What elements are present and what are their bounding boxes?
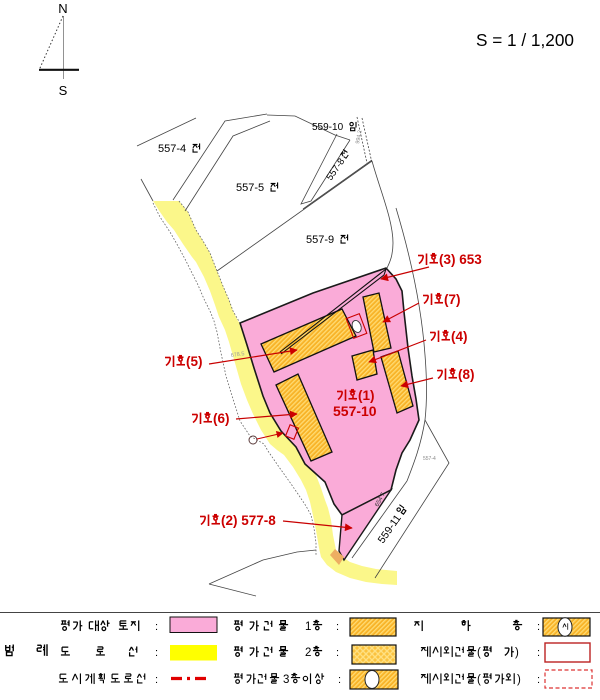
svg-text::: : [537,621,540,633]
svg-text:(8): (8) [458,367,475,382]
svg-text:557-5: 557-5 [236,182,264,194]
svg-text:557-4: 557-4 [158,143,186,155]
svg-text::: : [537,674,540,686]
svg-text:559-10: 559-10 [312,122,344,133]
svg-text:): ) [517,674,521,686]
svg-text:S: S [59,83,68,98]
svg-text:(1): (1) [358,388,375,403]
svg-text::: : [336,621,339,633]
svg-text:1: 1 [305,621,311,633]
svg-text::: : [155,647,158,659]
svg-text:(3) 653: (3) 653 [439,252,482,267]
svg-text:S = 1 / 1,200: S = 1 / 1,200 [476,30,574,50]
svg-text:): ) [515,647,519,659]
svg-text:(2) 577-8: (2) 577-8 [221,513,276,528]
svg-text:(5): (5) [186,354,203,369]
svg-text:(6): (6) [213,411,230,426]
svg-text:557-9: 557-9 [306,234,334,246]
svg-text::: : [336,647,339,659]
svg-text:(7): (7) [444,292,461,307]
svg-text::: : [338,674,341,686]
svg-text::: : [155,674,158,686]
svg-text:(4): (4) [451,329,468,344]
svg-text:(: ( [477,674,481,686]
svg-text::: : [537,647,540,659]
svg-text:3: 3 [283,674,289,686]
svg-text:N: N [58,1,67,16]
svg-text::: : [155,621,158,633]
svg-text:2: 2 [305,647,311,659]
svg-text:557-10: 557-10 [333,403,377,419]
svg-text:(: ( [477,647,481,659]
svg-text:557-4: 557-4 [423,456,436,462]
